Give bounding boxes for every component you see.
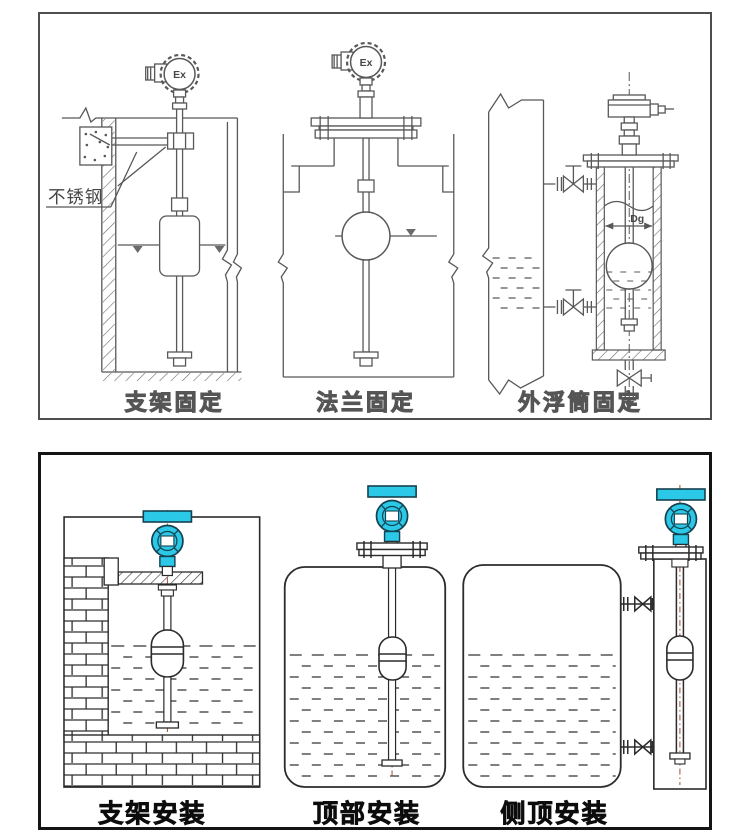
water-level-symbol <box>406 229 416 236</box>
water-level-symbol <box>214 246 224 253</box>
fixing-methods-panel: Ex 不锈钢 <box>38 12 712 420</box>
rod-coupling <box>358 180 374 192</box>
figure-bracket-fixing: Ex <box>62 55 241 381</box>
mounting-flange <box>311 116 421 140</box>
installation-styles-drawing: 支架安装 顶部安装 侧顶安装 <box>41 455 709 827</box>
brick-wall <box>64 558 108 737</box>
float-ball <box>342 212 390 260</box>
caption-bracket-fixing: 支架固定 <box>125 390 225 415</box>
figure-bracket-installation <box>64 510 260 787</box>
bottom-connection-valve <box>621 740 654 754</box>
top-isolation-valve <box>543 166 596 192</box>
tank-liquid-dashes <box>493 258 540 308</box>
rod-coupling <box>172 198 188 211</box>
figure-flange-fixing: Ex <box>278 43 457 377</box>
rod-end-stop <box>156 722 178 728</box>
float <box>379 637 406 680</box>
transmitter-head <box>368 486 416 551</box>
figure-external-chamber-fixing: Dg <box>483 72 678 410</box>
bracket-shelf <box>118 572 202 584</box>
ground-hatching <box>102 373 242 381</box>
tank-wall-right <box>449 134 458 377</box>
chamber-flange <box>639 545 703 561</box>
tank-wall-left <box>278 134 287 377</box>
caption-external-chamber-fixing: 外浮筒固定 <box>518 390 643 415</box>
tank-wall-right <box>222 122 231 372</box>
rod-end-stop <box>382 760 402 766</box>
rod-clamp <box>168 133 194 149</box>
diameter-label: Dg <box>630 214 644 225</box>
ex-transmitter-head: Ex <box>146 55 199 109</box>
wall-cap <box>104 558 118 585</box>
stainless-steel-label: 不锈钢 <box>48 187 103 207</box>
level-transmitter-installation-diagram: Ex 不锈钢 <box>0 0 750 840</box>
rod-end-stop <box>670 753 690 759</box>
rod-end-stop <box>354 352 378 358</box>
caption-side-top-installation: 侧顶安装 <box>500 799 608 827</box>
float-ball <box>606 243 652 289</box>
guide-rod <box>164 596 171 630</box>
ex-marking: Ex <box>173 70 186 81</box>
fixing-methods-drawing: Ex 不锈钢 <box>40 14 710 418</box>
junction-box-head <box>608 95 674 155</box>
figure-top-installation <box>285 486 445 787</box>
tank-nozzle <box>383 555 401 568</box>
water-level-symbol <box>133 246 143 253</box>
ex-marking: Ex <box>360 58 373 69</box>
bracket-arm <box>112 138 168 145</box>
caption-top-installation: 顶部安装 <box>313 799 421 827</box>
cable-gland <box>650 104 658 115</box>
float <box>160 216 200 276</box>
transmitter-head <box>657 489 705 554</box>
figure-side-top-installation <box>463 485 706 789</box>
ex-transmitter-head: Ex <box>332 43 385 118</box>
tank-column <box>483 94 544 394</box>
chamber-bottom-cap <box>592 350 665 360</box>
brick-floor <box>64 735 260 787</box>
top-connection-valve <box>621 597 654 611</box>
caption-flange-fixing: 法兰固定 <box>316 390 416 415</box>
installation-styles-panel: 支架安装 顶部安装 侧顶安装 <box>38 452 712 830</box>
float <box>667 636 693 680</box>
caption-bracket-installation: 支架安装 <box>98 799 206 827</box>
bottom-isolation-valve <box>543 290 596 315</box>
mounting-flange <box>357 541 427 558</box>
rod-end-stop <box>168 352 192 358</box>
